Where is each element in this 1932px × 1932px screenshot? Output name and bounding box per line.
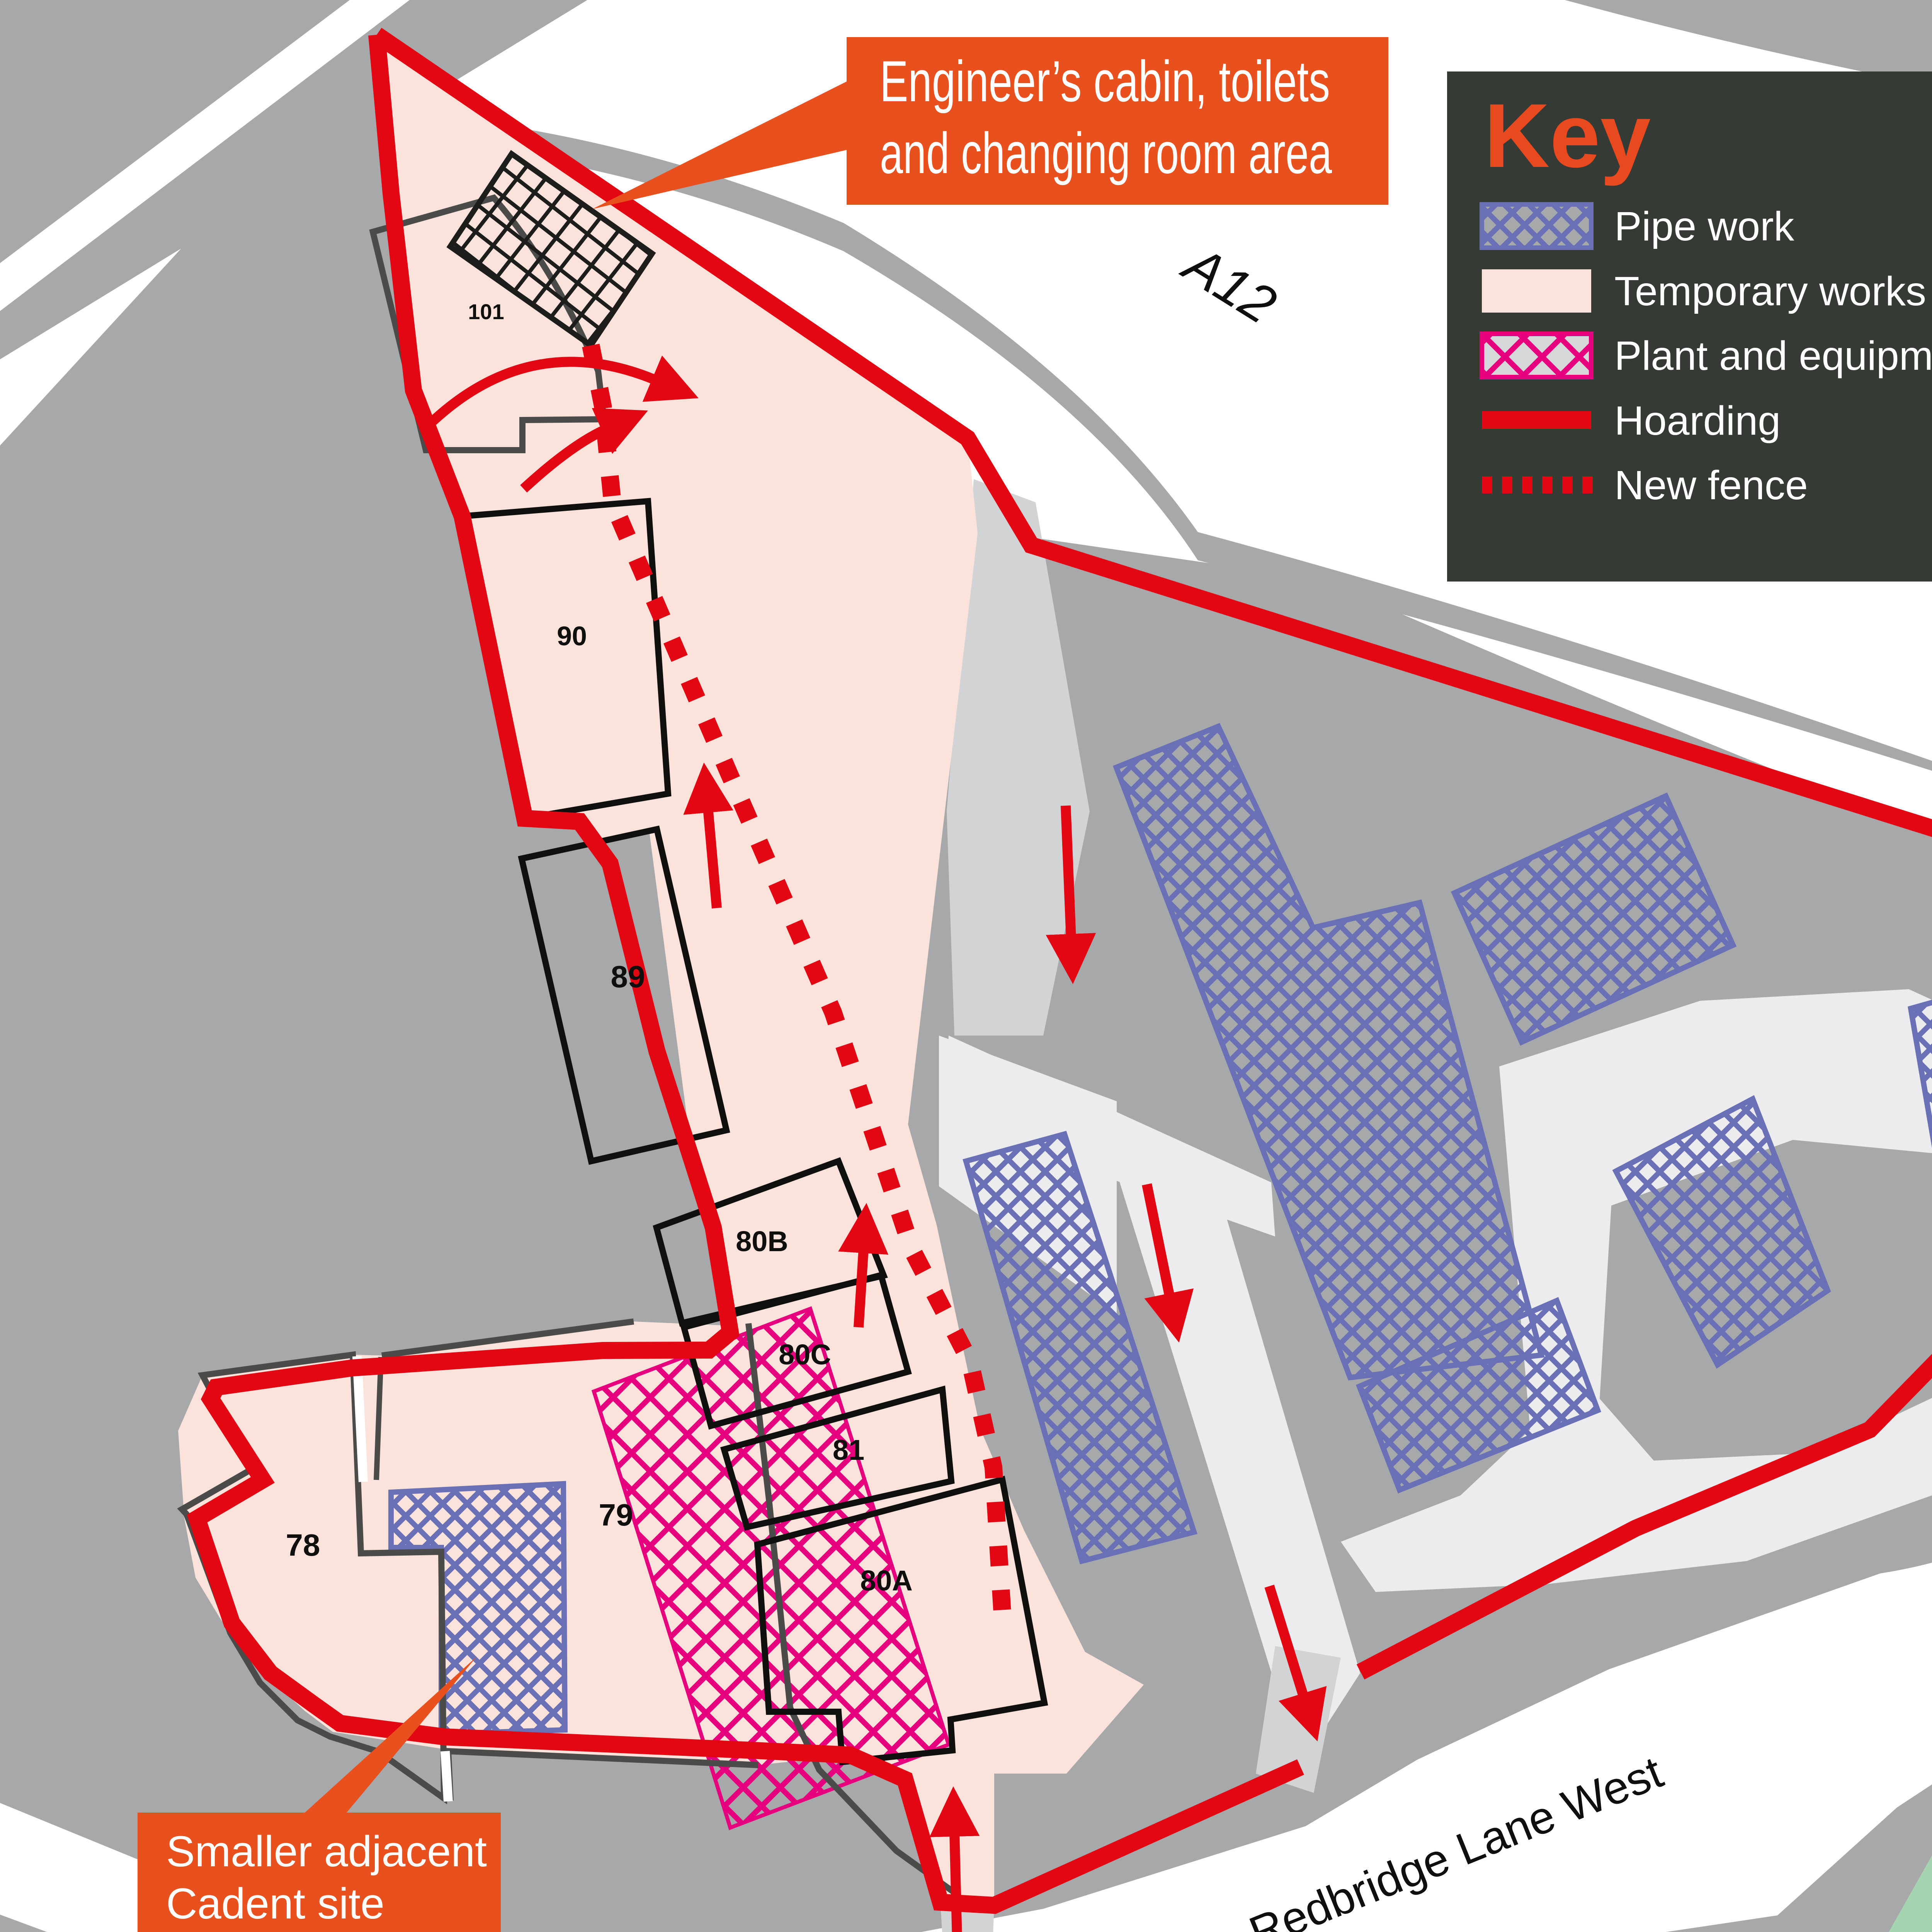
svg-text:Hoarding: Hoarding [1614, 398, 1781, 444]
svg-text:78: 78 [286, 1528, 320, 1562]
svg-text:80C: 80C [779, 1338, 831, 1371]
svg-text:Engineer’s cabin, toilets: Engineer’s cabin, toilets [880, 49, 1330, 114]
svg-text:Pipe work: Pipe work [1614, 204, 1794, 249]
svg-text:80A: 80A [860, 1565, 913, 1597]
svg-text:New fence: New fence [1614, 463, 1808, 508]
svg-text:89: 89 [611, 959, 645, 994]
svg-text:79: 79 [599, 1498, 633, 1532]
svg-text:90: 90 [557, 621, 587, 651]
svg-text:101: 101 [468, 299, 504, 324]
svg-text:Smaller adjacent: Smaller adjacent [166, 1827, 487, 1876]
svg-text:80B: 80B [736, 1225, 788, 1257]
svg-text:81: 81 [833, 1434, 864, 1466]
svg-text:Cadent site: Cadent site [166, 1879, 384, 1928]
svg-text:Plant and equipment storage: Plant and equipment storage [1614, 333, 1932, 379]
svg-text:Temporary works: Temporary works [1614, 269, 1926, 314]
svg-text:and changing room area: and changing room area [880, 121, 1332, 185]
svg-text:Key: Key [1484, 85, 1651, 186]
